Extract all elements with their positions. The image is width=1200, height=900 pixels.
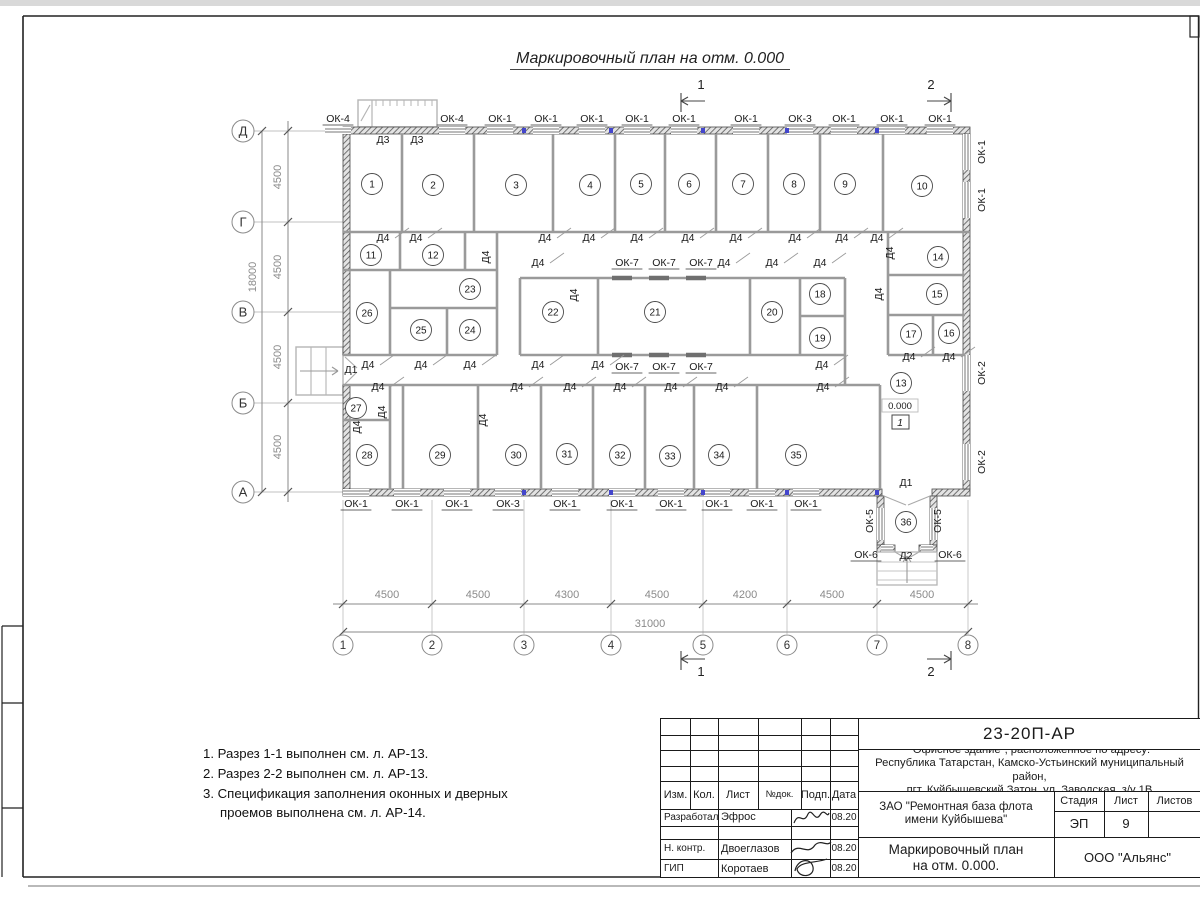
tb-sheets-value xyxy=(1148,811,1200,837)
window-opening xyxy=(963,355,970,391)
dim-label: 4500 xyxy=(272,345,284,369)
tb-header-list: Лист xyxy=(718,781,758,809)
level-mark: 0.000 xyxy=(888,401,912,412)
sheet-top-edge xyxy=(0,0,1200,6)
door-mark: Д4 xyxy=(682,232,695,244)
window-opening xyxy=(439,127,465,134)
vent-mark xyxy=(701,490,705,495)
window-opening xyxy=(927,127,953,134)
room-number: 4 xyxy=(587,181,593,192)
dim-total-label: 31000 xyxy=(635,618,666,630)
door-mark: Д4 xyxy=(766,257,779,269)
door-mark: Д4 xyxy=(814,257,827,269)
corner-stamp-box xyxy=(1190,16,1199,37)
tb-sheets-label: Листов xyxy=(1148,791,1200,811)
door-swing xyxy=(832,253,846,263)
room-number: 8 xyxy=(791,180,797,191)
room-number: 26 xyxy=(361,309,373,320)
door-mark: Д4 xyxy=(511,381,524,393)
door-mark: Д4 xyxy=(464,359,477,371)
window-mark: ОК-3 xyxy=(788,113,812,125)
door-mark: Д4 xyxy=(377,232,390,244)
room-number: 33 xyxy=(664,452,676,463)
door-mark: Д4 xyxy=(716,381,729,393)
tb-company: ООО "Альянс" xyxy=(1054,837,1200,878)
door-mark: Д4 xyxy=(351,420,363,433)
window-opening xyxy=(963,134,970,170)
axis-label: 6 xyxy=(784,640,790,652)
vent-mark xyxy=(875,128,879,133)
window-mark: ОК-7 xyxy=(615,361,639,373)
window-mark: ОК-7 xyxy=(689,361,713,373)
window-opening xyxy=(704,489,730,496)
dim-label: 4200 xyxy=(733,589,757,601)
tb-name: Эфрос xyxy=(721,809,791,826)
tb-client: ЗАО "Ремонтная база флота имени Куйбышев… xyxy=(858,791,1054,837)
door-mark: Д4 xyxy=(372,381,385,393)
window-opening xyxy=(444,489,470,496)
tb-role: Разработал xyxy=(664,809,718,826)
window-opening xyxy=(877,508,884,540)
room-number: 31 xyxy=(561,450,573,461)
window-mark: ОК-1 xyxy=(750,498,774,510)
tb-date: 08.20 xyxy=(830,809,858,826)
room-number: 15 xyxy=(931,290,943,301)
room-number: 10 xyxy=(916,182,928,193)
door-mark: Д4 xyxy=(592,359,605,371)
vent-mark xyxy=(875,490,879,495)
door-swing xyxy=(550,355,564,365)
window-opening xyxy=(963,444,970,480)
window-opening xyxy=(879,127,905,134)
window-mark: ОК-4 xyxy=(326,113,350,125)
tb-name: Коротаев xyxy=(721,859,791,878)
vent-mark xyxy=(785,128,789,133)
window-mark: ОК-2 xyxy=(976,361,988,385)
door-mark: Д4 xyxy=(480,250,492,263)
window-opening xyxy=(552,489,578,496)
window-opening xyxy=(579,127,605,134)
room-number: 11 xyxy=(366,251,377,262)
window-mark: ОК-1 xyxy=(553,498,577,510)
porch-arrow xyxy=(332,367,338,371)
window-mark: ОК-7 xyxy=(689,257,713,269)
vent-mark xyxy=(609,490,613,495)
window-mark: ОК-1 xyxy=(880,113,904,125)
window-opening xyxy=(495,489,521,496)
vent-mark xyxy=(701,128,705,133)
section-arrow xyxy=(681,101,688,105)
note-line: 3. Спецификация заполнения оконных и две… xyxy=(203,784,535,824)
door-mark: Д4 xyxy=(789,232,802,244)
window-mark: ОК-5 xyxy=(864,509,876,533)
canopy-arrow xyxy=(361,105,370,121)
section-label: 1 xyxy=(697,664,704,679)
window-opening xyxy=(733,127,759,134)
door-swing xyxy=(550,253,564,263)
note-line: 2. Разрез 2-2 выполнен см. л. АР-13. xyxy=(203,764,535,784)
room-number: 12 xyxy=(427,251,439,262)
door-mark: Д4 xyxy=(730,232,743,244)
room-number: 30 xyxy=(510,451,522,462)
vent-mark xyxy=(785,490,789,495)
tb-address: "Офисное здание", расположенное по адрес… xyxy=(858,750,1200,791)
window-mark: ОК-1 xyxy=(734,113,758,125)
door-mark: Д4 xyxy=(532,257,545,269)
room-number: 9 xyxy=(842,180,848,191)
dim-label: 4500 xyxy=(910,589,934,601)
tb-sheet-label: Лист xyxy=(1104,791,1148,811)
room-number: 19 xyxy=(814,334,826,345)
window-mark: ОК-1 xyxy=(488,113,512,125)
dim-label: 4500 xyxy=(272,165,284,189)
window-mark: ОК-4 xyxy=(440,113,464,125)
door-mark: Д4 xyxy=(477,413,489,426)
section-arrow xyxy=(681,659,688,663)
dim-label: 4500 xyxy=(820,589,844,601)
window-mark: ОК-1 xyxy=(976,140,988,164)
room-number: 17 xyxy=(905,330,917,341)
axis-label: 3 xyxy=(521,640,527,652)
room-number: 23 xyxy=(464,285,476,296)
door-mark: Д4 xyxy=(362,359,375,371)
room-number: 20 xyxy=(766,308,778,319)
floor-mark: 1 xyxy=(897,417,903,429)
window-mark: ОК-7 xyxy=(615,257,639,269)
door-mark: Д4 xyxy=(376,405,388,418)
window-mark: ОК-1 xyxy=(976,188,988,212)
window-opening xyxy=(787,127,813,134)
axis-label: 8 xyxy=(965,640,971,652)
tb-header-ndok: №док. xyxy=(758,781,801,809)
axis-label: 4 xyxy=(608,640,615,652)
door-leaf xyxy=(884,496,906,505)
section-arrow xyxy=(681,97,688,101)
window-opening xyxy=(881,545,893,552)
room-number: 14 xyxy=(932,253,944,264)
room-number: 28 xyxy=(361,451,373,462)
axis-label: В xyxy=(239,305,248,320)
door-mark: Д4 xyxy=(415,359,428,371)
section-arrow xyxy=(944,97,951,101)
window-opening xyxy=(533,127,559,134)
window-opening xyxy=(831,127,857,134)
tb-role: Н. контр. xyxy=(664,839,718,859)
door-mark: Д4 xyxy=(871,232,884,244)
vent-mark xyxy=(522,490,526,495)
porch-arrow xyxy=(332,371,338,375)
door-mark: Д3 xyxy=(411,134,424,146)
window-mark: ОК-5 xyxy=(932,509,944,533)
tb-header-data: Дата xyxy=(830,781,858,809)
door-mark: Д4 xyxy=(539,232,552,244)
window-mark: ОК-1 xyxy=(672,113,696,125)
door-swing xyxy=(433,355,447,365)
door-mark: Д4 xyxy=(816,359,829,371)
door-mark: Д1 xyxy=(900,477,913,489)
room-number: 7 xyxy=(740,180,746,191)
window-opening xyxy=(921,545,933,552)
axis-label: Д xyxy=(239,124,248,139)
window-mark: ОК-1 xyxy=(659,498,683,510)
vent-mark xyxy=(609,128,613,133)
signature xyxy=(791,807,831,829)
bearing-wall xyxy=(343,134,350,355)
dim-label: 4500 xyxy=(375,589,399,601)
window-mark: ОК-7 xyxy=(652,257,676,269)
window-opening xyxy=(624,127,650,134)
axis-label: 2 xyxy=(429,640,435,652)
door-mark: Д4 xyxy=(410,232,423,244)
tb-drawing-title: Маркировочный план на отм. 0.000. xyxy=(858,837,1054,878)
window-mark: ОК-1 xyxy=(534,113,558,125)
dim-label: 4500 xyxy=(466,589,490,601)
window-mark: ОК-6 xyxy=(854,549,878,561)
signature xyxy=(787,837,835,878)
window-mark: ОК-1 xyxy=(625,113,649,125)
dim-label: 4500 xyxy=(645,589,669,601)
door-mark: Д4 xyxy=(665,381,678,393)
window-opening xyxy=(749,489,775,496)
bearing-wall xyxy=(932,489,970,496)
door-mark: Д4 xyxy=(532,359,545,371)
window-mark: ОК-1 xyxy=(705,498,729,510)
door-mark: Д4 xyxy=(943,351,956,363)
door-mark: Д4 xyxy=(836,232,849,244)
window-opening xyxy=(343,489,369,496)
door-mark: Д4 xyxy=(718,257,731,269)
tb-sheet-value: 9 xyxy=(1104,811,1148,837)
room-number: 3 xyxy=(513,181,519,192)
window-mark: ОК-1 xyxy=(395,498,419,510)
window-mark: ОК-1 xyxy=(610,498,634,510)
door-swing xyxy=(784,253,798,263)
room-number: 34 xyxy=(713,451,725,462)
room-number: 18 xyxy=(814,290,826,301)
door-mark: Д4 xyxy=(631,232,644,244)
door-mark: Д1 xyxy=(345,364,358,376)
window-mark: ОК-1 xyxy=(344,498,368,510)
section-arrow xyxy=(944,101,951,105)
room-number: 2 xyxy=(430,181,436,192)
section-label: 2 xyxy=(927,77,934,92)
room-number: 29 xyxy=(434,451,446,462)
tb-role: ГИП xyxy=(664,859,718,878)
room-number: 35 xyxy=(790,451,802,462)
window-opening xyxy=(325,127,351,134)
room-number: 5 xyxy=(638,180,644,191)
room-number: 16 xyxy=(943,329,955,340)
room-number: 32 xyxy=(614,451,626,462)
section-label: 2 xyxy=(927,664,934,679)
room-number: 6 xyxy=(686,180,692,191)
tb-stage-label: Стадия xyxy=(1054,791,1104,811)
door-swing xyxy=(736,253,750,263)
window-mark: ОК-6 xyxy=(938,549,962,561)
room-number: 13 xyxy=(895,379,907,390)
axis-label: Г xyxy=(239,215,246,230)
door-mark: Д4 xyxy=(817,381,830,393)
room-number: 22 xyxy=(547,308,559,319)
door-mark: Д4 xyxy=(583,232,596,244)
room-number: 1 xyxy=(369,180,375,191)
window-opening xyxy=(394,489,420,496)
tb-name: Двоеглазов xyxy=(721,839,791,859)
tb-header-kol: Кол. xyxy=(690,781,718,809)
door-mark: Д2 xyxy=(900,550,913,562)
notes-block: 1. Разрез 1-1 выполнен см. л. АР-13. 2. … xyxy=(203,744,535,823)
section-label: 1 xyxy=(697,77,704,92)
door-swing xyxy=(482,355,496,365)
room-number: 25 xyxy=(415,326,427,337)
axis-label: 7 xyxy=(874,640,880,652)
window-mark: ОК-3 xyxy=(496,498,520,510)
door-mark: Д3 xyxy=(377,134,390,146)
room-number: 24 xyxy=(464,326,476,337)
sheet-bottom-shadow xyxy=(28,885,1200,887)
axis-label: 5 xyxy=(700,640,706,652)
section-arrow xyxy=(944,659,951,663)
plan-title: Маркировочный план на отм. 0.000 xyxy=(430,50,870,68)
axis-label: Б xyxy=(239,396,248,411)
section-arrow xyxy=(681,655,688,659)
tb-stage-value: ЭП xyxy=(1054,811,1104,837)
window-opening xyxy=(671,127,697,134)
tb-header-izm: Изм. xyxy=(661,781,690,809)
window-mark: ОК-1 xyxy=(832,113,856,125)
door-leaf xyxy=(908,496,930,505)
dim-total-label: 18000 xyxy=(247,262,259,293)
section-arrow xyxy=(944,655,951,659)
door-swing xyxy=(380,355,394,365)
window-mark: ОК-7 xyxy=(652,361,676,373)
dim-label: 4300 xyxy=(555,589,579,601)
dim-label: 4500 xyxy=(272,435,284,459)
window-opening xyxy=(658,489,684,496)
tb-header-podp: Подп. xyxy=(801,781,830,809)
note-line: 1. Разрез 1-1 выполнен см. л. АР-13. xyxy=(203,744,535,764)
window-mark: ОК-1 xyxy=(580,113,604,125)
axis-label: 1 xyxy=(340,640,346,652)
window-mark: ОК-1 xyxy=(794,498,818,510)
room-number: 36 xyxy=(900,518,912,529)
door-mark: Д4 xyxy=(903,351,916,363)
tb-doc-number: 23-20П-АР xyxy=(858,719,1200,749)
room-number: 21 xyxy=(649,308,661,319)
axis-label: А xyxy=(239,485,248,500)
vent-mark xyxy=(522,128,526,133)
window-opening xyxy=(963,182,970,218)
door-mark: Д4 xyxy=(614,381,627,393)
door-mark: Д4 xyxy=(873,287,885,300)
window-mark: ОК-2 xyxy=(976,450,988,474)
dim-label: 4500 xyxy=(272,255,284,279)
room-number: 27 xyxy=(350,404,362,415)
door-mark: Д4 xyxy=(884,246,896,259)
door-mark: Д4 xyxy=(564,381,577,393)
window-mark: ОК-1 xyxy=(445,498,469,510)
door-mark: Д4 xyxy=(568,288,580,301)
window-mark: ОК-1 xyxy=(928,113,952,125)
title-block: Изм. Кол. Лист №док. Подп. Дата Разработ… xyxy=(660,718,1200,878)
window-opening xyxy=(793,489,819,496)
window-opening xyxy=(487,127,513,134)
drawing-sheet: { "sheet": { "plan_title": "Маркировочны… xyxy=(0,0,1200,900)
